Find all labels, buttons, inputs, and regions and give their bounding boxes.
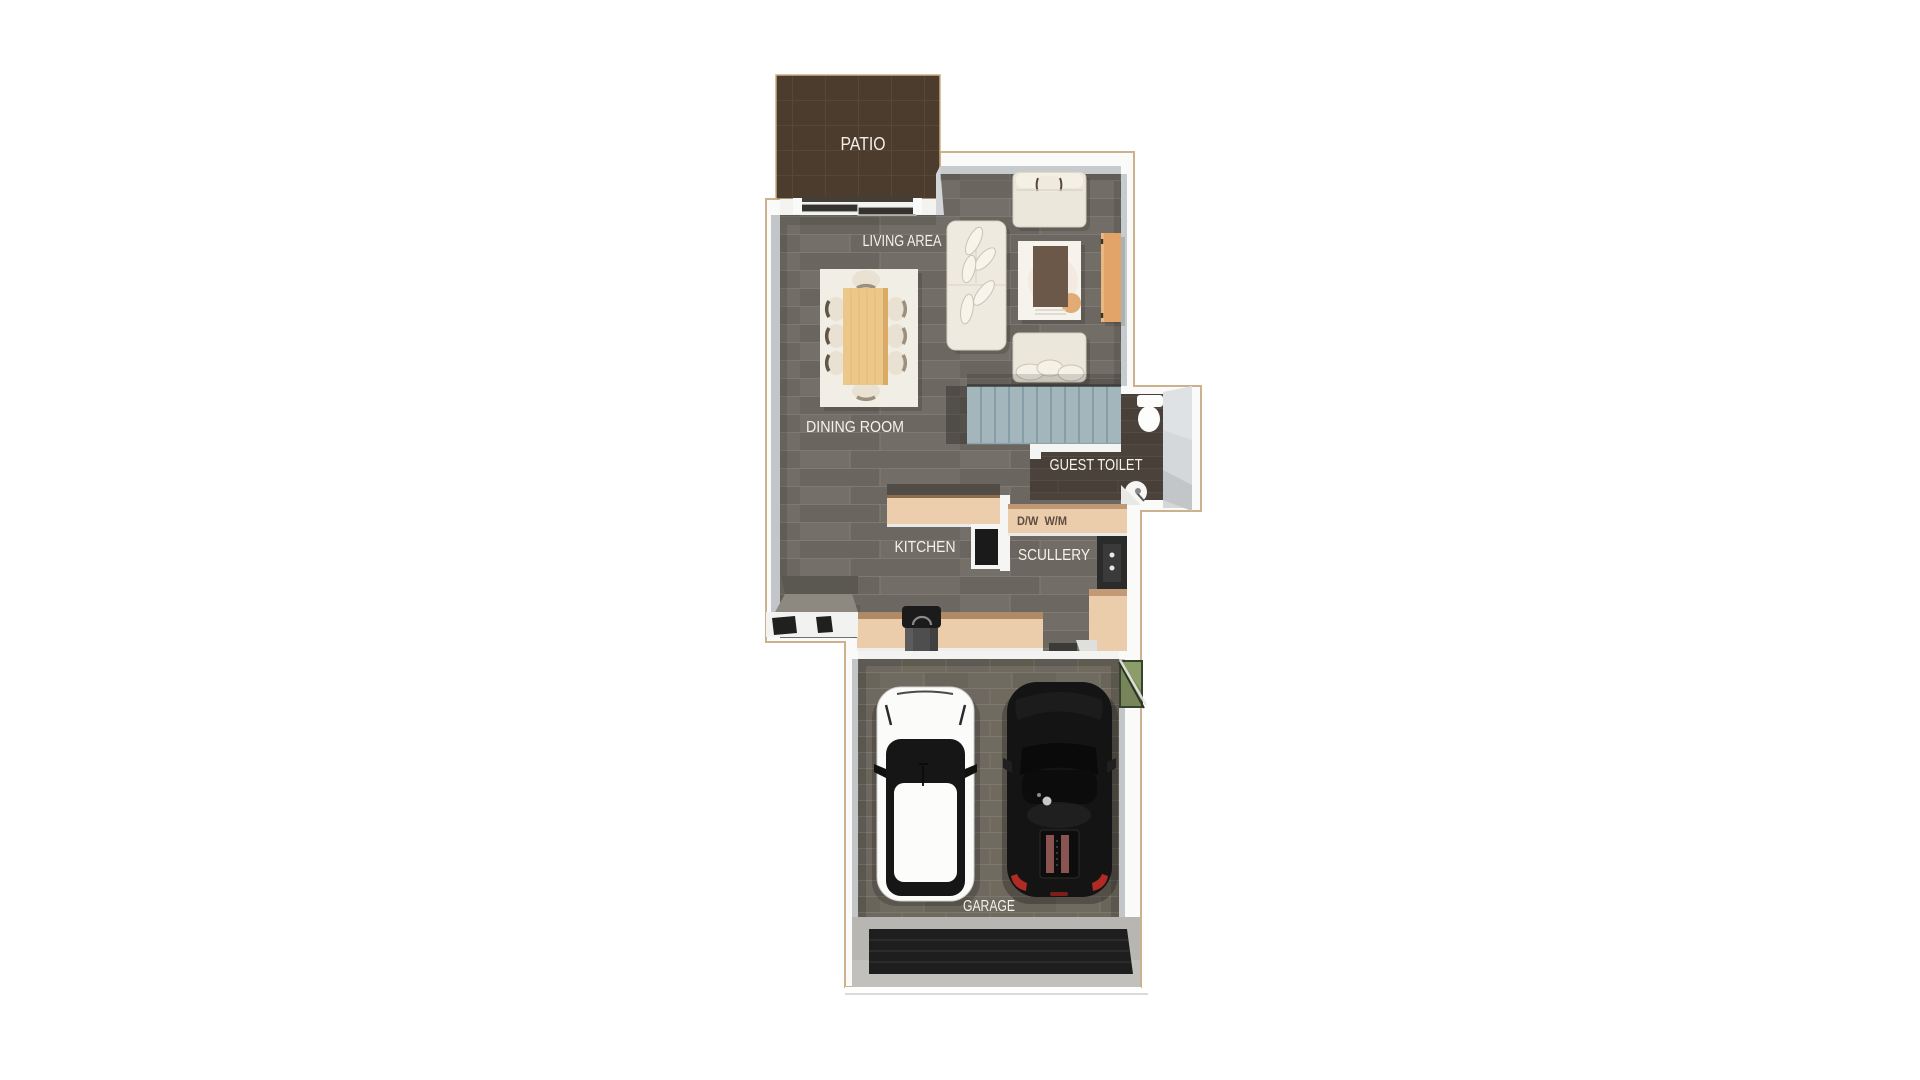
svg-text:DINING ROOM: DINING ROOM <box>806 419 904 436</box>
svg-text:D/W W/M: D/W W/M <box>1017 516 1067 528</box>
svg-text:GARAGE: GARAGE <box>963 898 1015 915</box>
svg-text:GUEST TOILET: GUEST TOILET <box>1050 457 1143 474</box>
svg-text:KITCHEN: KITCHEN <box>895 539 956 556</box>
svg-text:SCULLERY: SCULLERY <box>1018 547 1090 564</box>
svg-text:PATIO: PATIO <box>841 134 886 154</box>
svg-text:LIVING AREA: LIVING AREA <box>863 233 942 250</box>
